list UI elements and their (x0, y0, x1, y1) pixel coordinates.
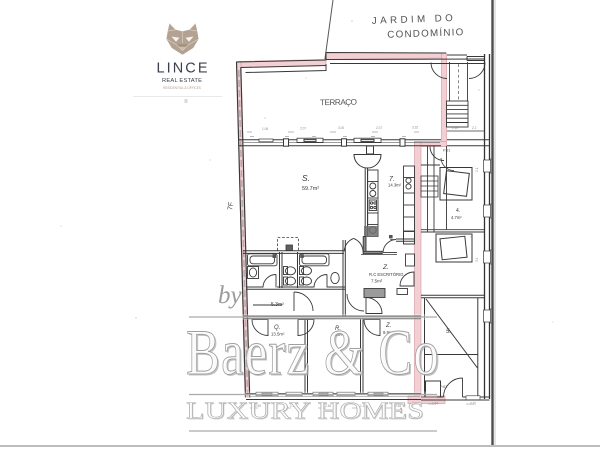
svg-text:5.3m²: 5.3m² (271, 302, 284, 308)
svg-text:1.06: 1.06 (262, 127, 268, 131)
svg-text:2.2: 2.2 (472, 126, 477, 130)
svg-text:LUXURY HOMES: LUXURY HOMES (186, 399, 424, 425)
svg-text:TERRAÇO: TERRAÇO (320, 98, 357, 108)
svg-text:3.4: 3.4 (475, 257, 479, 262)
svg-text:Z.: Z. (382, 264, 389, 271)
svg-text:4.7m²: 4.7m² (451, 215, 462, 220)
svg-text:7.5m²: 7.5m² (371, 279, 383, 284)
svg-text:3.32: 3.32 (412, 126, 418, 130)
svg-text:REAL ESTATE: REAL ESTATE (162, 78, 202, 84)
svg-text:RESIDENTIAL & OFFICES: RESIDENTIAL & OFFICES (163, 86, 202, 90)
svg-text:7F: 7F (227, 202, 235, 211)
svg-text:S.: S. (302, 173, 310, 183)
svg-text:5.: 5. (446, 329, 451, 335)
svg-text:R.C ESCRITÓRIO: R.C ESCRITÓRIO (369, 272, 404, 277)
svg-text:2.20: 2.20 (470, 402, 476, 406)
svg-text:4.: 4. (456, 208, 460, 214)
svg-text:3.00: 3.00 (338, 126, 344, 130)
svg-text:2.07: 2.07 (300, 127, 306, 131)
svg-text:1.64: 1.64 (432, 402, 438, 406)
svg-text:by: by (218, 282, 243, 309)
svg-text:59.7m²: 59.7m² (302, 186, 319, 192)
svg-text:LINCE: LINCE (157, 61, 208, 77)
svg-text:2.07: 2.07 (376, 126, 382, 130)
svg-text:14.3m²: 14.3m² (388, 183, 402, 188)
svg-text:2.1: 2.1 (475, 167, 479, 172)
svg-text:Baerz & Co: Baerz & Co (186, 316, 440, 388)
svg-text:P.61: P.61 (443, 149, 450, 153)
